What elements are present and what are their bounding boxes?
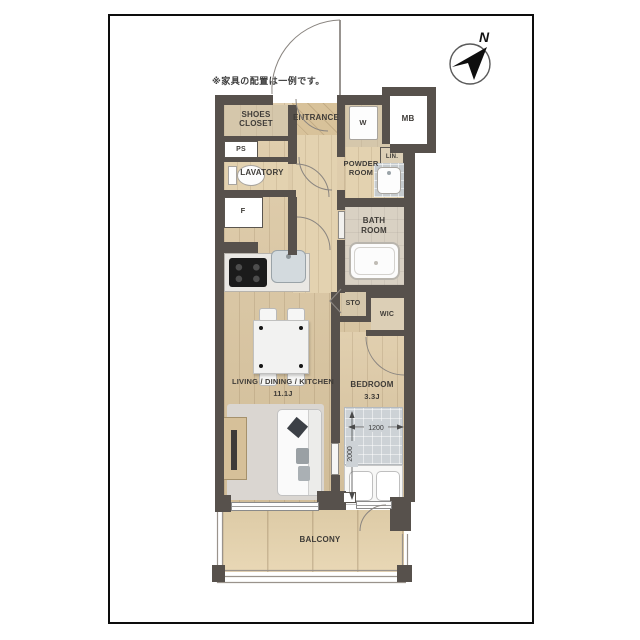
balcony-post [397,565,412,582]
dim-arrow-left [348,424,355,429]
bed-width-dimension: 1200 [348,421,404,432]
bedroom-door-arc [366,337,404,375]
plan-overlay: 1200 2000 N [0,0,640,640]
balcony-railing [217,512,408,583]
dim-bed-width: 1200 [368,425,384,432]
hall-door-arc [297,217,330,250]
storage-bifold-door [330,289,341,313]
dim-arrow-top [349,411,354,418]
bed-length-dimension: 2000 [346,411,358,500]
compass: N [450,29,490,84]
compass-north-label: N [479,29,490,45]
closet-door-arc [296,99,328,131]
entrance-door-arc [272,20,340,94]
floor-plan-page: ※家具の配置は一例です。 [0,0,640,640]
dim-bed-length: 2000 [347,446,354,462]
dim-arrow-right [397,424,404,429]
balcony-door-arc [360,505,386,531]
dim-arrow-bottom [349,493,354,500]
balcony-post [212,565,225,582]
